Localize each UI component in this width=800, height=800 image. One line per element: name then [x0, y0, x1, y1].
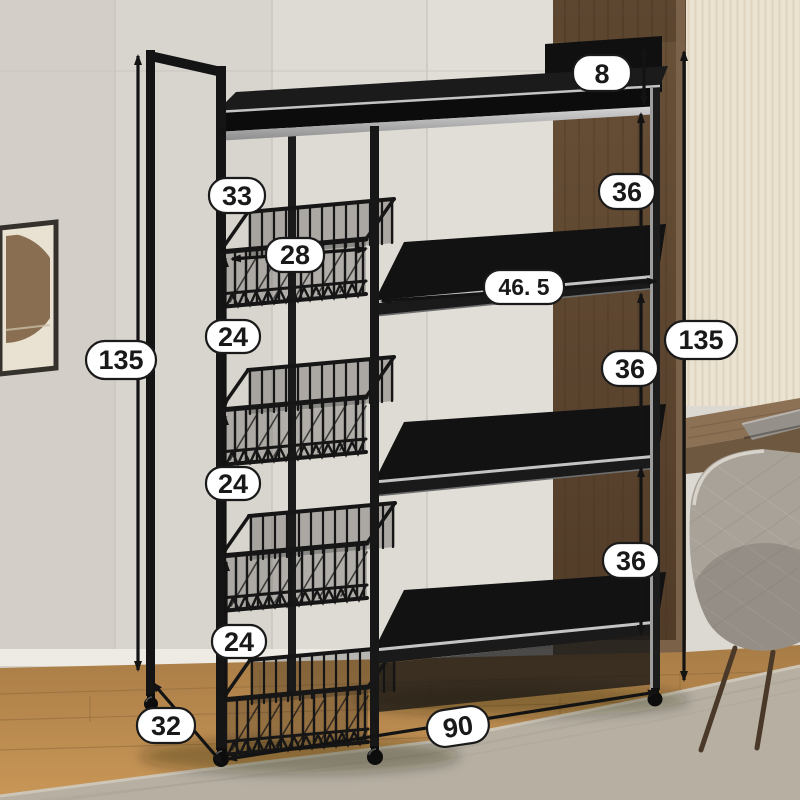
dimension-value: 32 [151, 711, 181, 741]
dimension-value: 90 [441, 710, 475, 744]
dimension-value: 135 [98, 345, 143, 375]
dimension-label-height-left: 135 [86, 341, 156, 379]
dimension-value: 24 [224, 627, 254, 657]
dimension-value: 46. 5 [498, 274, 549, 300]
dimension-label-depth: 32 [137, 708, 195, 743]
dimension-label-shelf-gap-1: 36 [599, 174, 655, 209]
dimension-label-shelf-gap-3: 36 [603, 543, 659, 578]
dimension-value: 135 [678, 325, 723, 355]
dimension-label-top-gap: 33 [209, 178, 265, 213]
picture-frame [0, 222, 59, 374]
dimension-label-height-right: 135 [665, 321, 737, 359]
dimension-label-basket-gap-3: 24 [212, 625, 266, 658]
dimension-label-shelf-width: 46. 5 [484, 270, 564, 304]
dimension-value: 24 [218, 322, 248, 352]
dimension-value: 33 [222, 181, 252, 211]
dimension-value: 8 [594, 59, 609, 89]
scene-canvas: 8 33 28 24 24 24 135 135 [0, 0, 800, 800]
dimension-value: 36 [616, 546, 646, 576]
dimension-label-basket-gap-2: 24 [206, 467, 260, 500]
dimension-label-shelf-gap-2: 36 [602, 351, 658, 386]
front-right-post [650, 88, 660, 690]
dimension-value: 36 [612, 177, 642, 207]
center-front-post [370, 126, 379, 748]
dimension-label-top-rail: 8 [573, 55, 631, 91]
product-dimension-photo: 8 33 28 24 24 24 135 135 [0, 0, 800, 800]
dimension-value: 24 [218, 469, 248, 499]
dimension-value: 36 [615, 354, 645, 384]
dimension-value: 28 [280, 240, 310, 270]
dimension-label-basket-gap-1: 24 [206, 320, 260, 353]
dimension-label-basket-width: 28 [266, 238, 324, 272]
